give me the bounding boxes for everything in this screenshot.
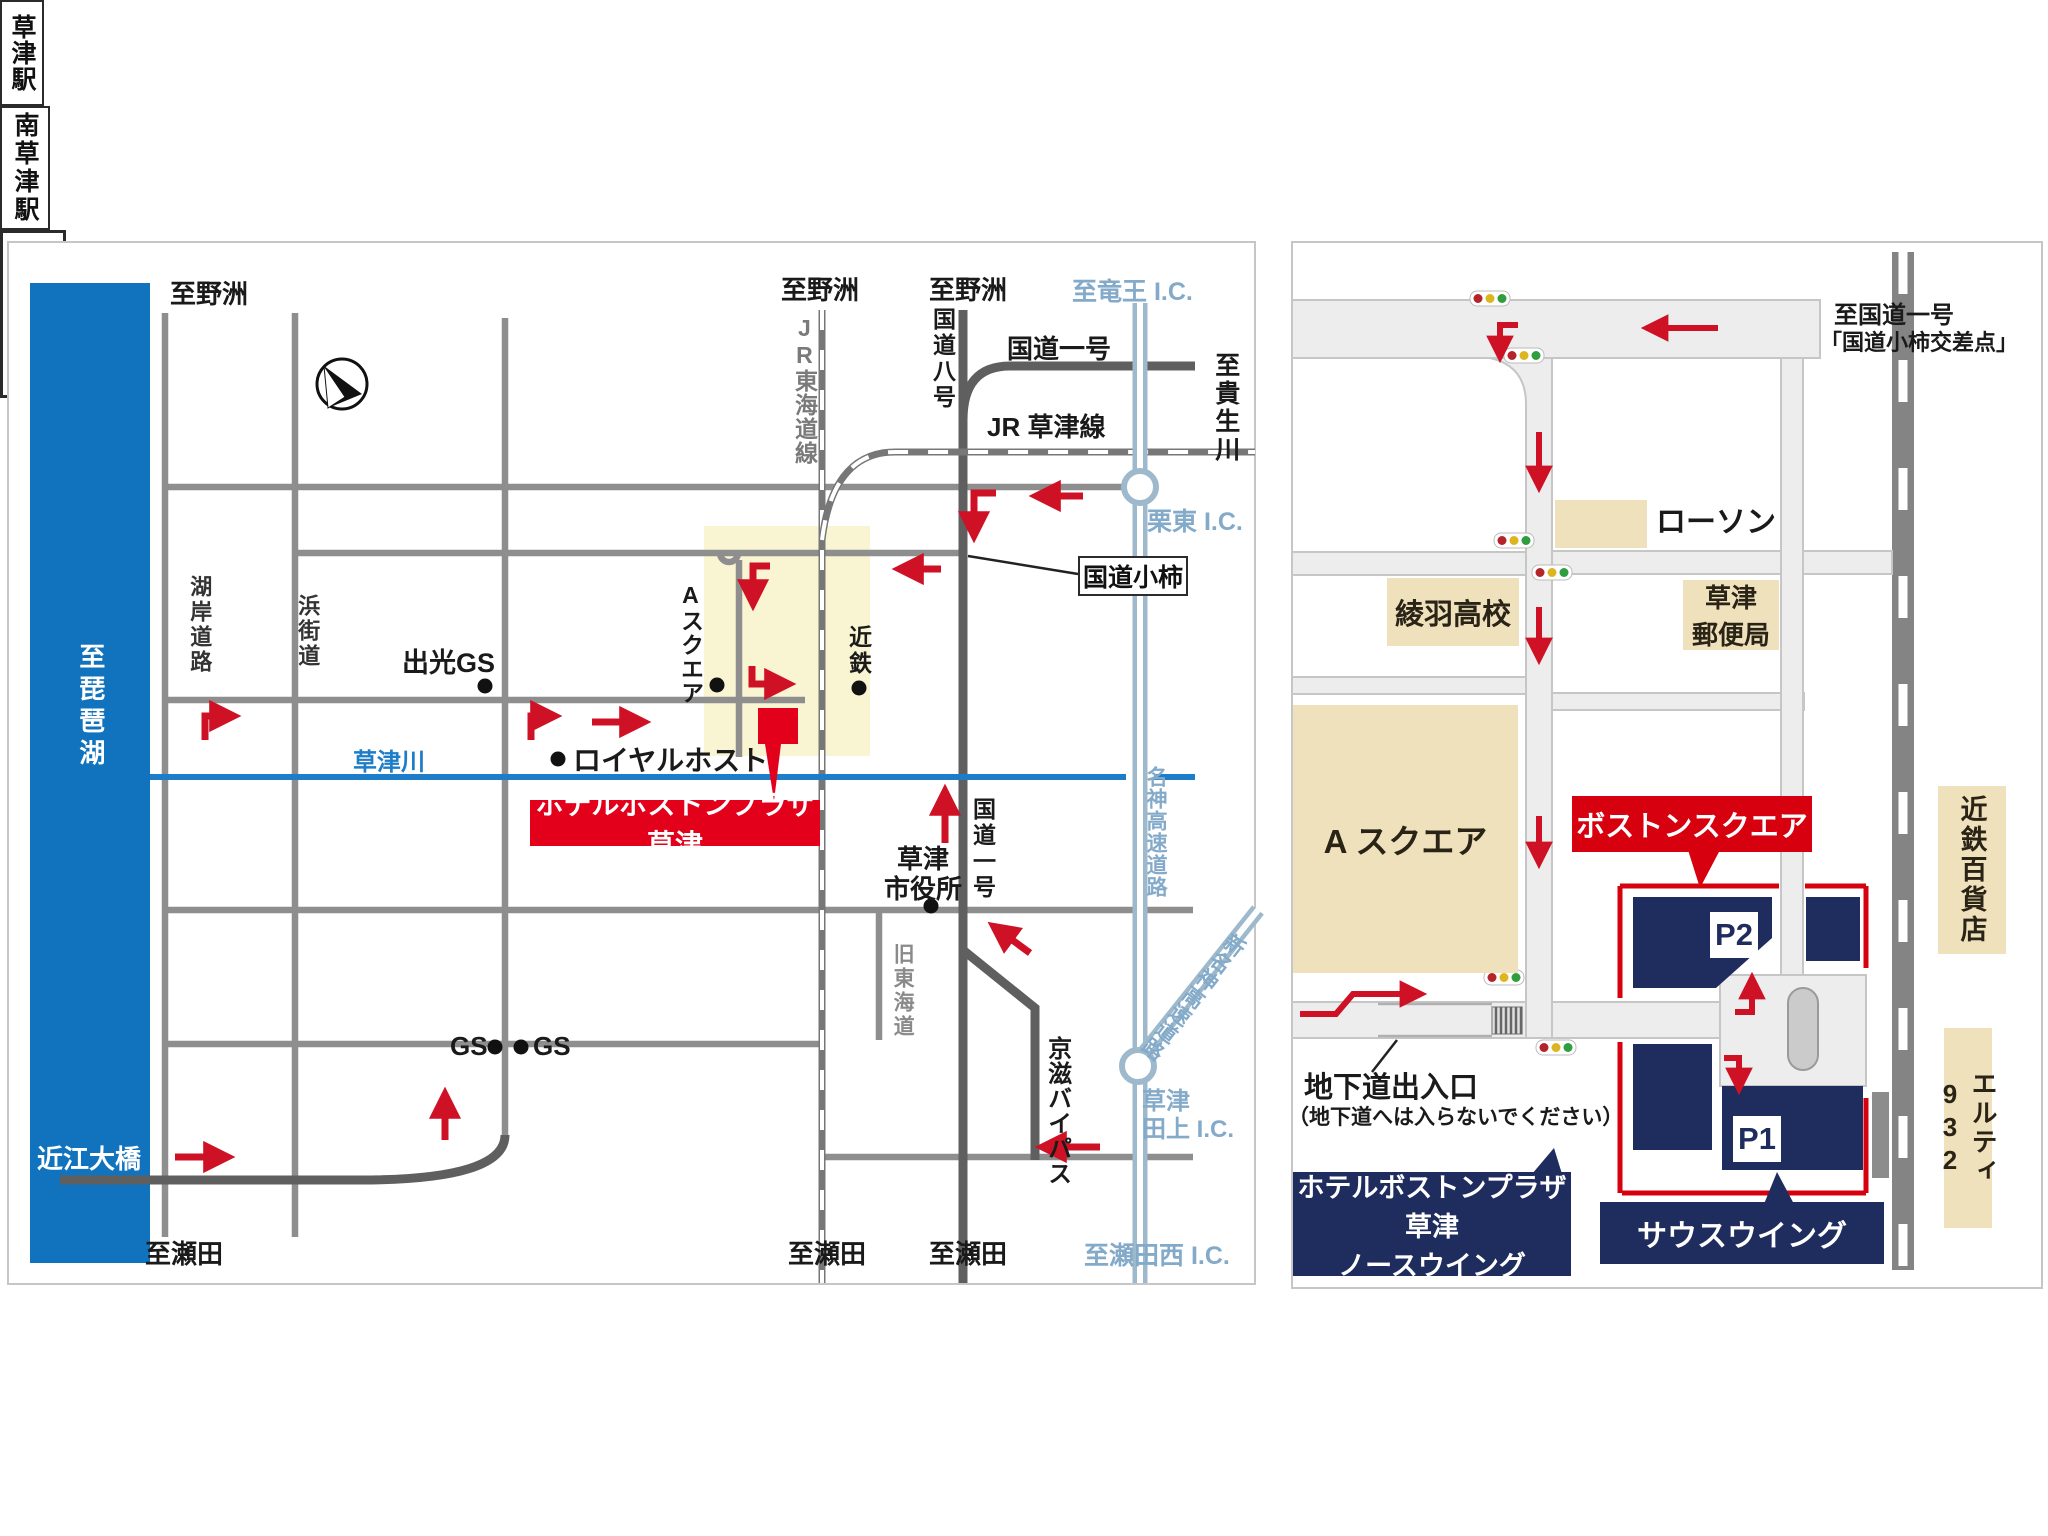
south-wing-box: サウスウイング (1600, 1202, 1884, 1264)
platform-bar (1872, 1092, 1889, 1178)
road-ha-east (1552, 551, 1892, 574)
kintetsu-dept-box: 近鉄百貨店 (1938, 786, 2006, 954)
omi-ohashi-label: 近江大橋 (37, 1145, 141, 1175)
to-setanishi-ic-label: 至瀬田西 I.C. (1084, 1242, 1230, 1271)
to-yasu-label-west: 至野洲 (170, 280, 248, 310)
hama-kaido-label: 浜街道 (295, 594, 320, 669)
rotary-island (1788, 988, 1818, 1070)
kogan-road-label: 湖岸道路 (187, 575, 212, 675)
east-building (1806, 897, 1860, 961)
to-yasu-label-rail: 至野洲 (781, 276, 859, 306)
royal-host-dot (551, 752, 566, 767)
hotel-north-line2: ノースウイング (1338, 1244, 1526, 1283)
to-route1-line1: 至国道一号 (1820, 302, 2018, 330)
road-hb-east (1552, 693, 1804, 710)
to-route1-label: 至国道一号 「国道小柿交差点」 (1820, 302, 2018, 355)
traffic-light-icon (1470, 291, 1510, 306)
city-hall-line1: 草津 (897, 845, 949, 875)
gs-west-label: GS (450, 1032, 488, 1062)
kintetsu-label: 近鉄 (845, 625, 871, 677)
to-seta-label-west: 至瀬田 (145, 1240, 223, 1270)
hotel-marker (758, 708, 798, 744)
underpass-label-line1: 地下道出入口 (1304, 1072, 1478, 1105)
hotel-north-line1: ホテルボストンプラザ草津 (1293, 1166, 1571, 1244)
right-railway (1892, 252, 1914, 1270)
to-biwako-label: 至琵琶湖 (75, 643, 105, 771)
a-square-box-right: A スクエア (1293, 705, 1518, 973)
north-wing-tower (1633, 1044, 1712, 1150)
a-square-dot (710, 678, 725, 693)
hotel-label-box: ホテルボストンプラザ草津 (530, 800, 820, 846)
to-seta-label-rail: 至瀬田 (788, 1240, 866, 1270)
traffic-light-icon (1532, 565, 1572, 580)
route8-label: 国道八号 (929, 307, 955, 411)
to-ryuo-ic-label: 至竜王 I.C. (1072, 278, 1193, 307)
compass-icon (317, 359, 367, 409)
p2-label-box: P2 (1710, 912, 1758, 958)
boston-square-label-box: ボストンスクエア (1572, 796, 1812, 852)
lawson-block (1555, 500, 1647, 548)
tagami-line1: 草津 (1142, 1088, 1190, 1116)
ritto-ic-circle (1124, 471, 1156, 503)
lake-biwa-bar (30, 283, 150, 1263)
city-hall-label: 草津 市役所 (884, 845, 962, 905)
idemitsu-gs-label: 出光GS (402, 648, 495, 679)
road-vb (1781, 358, 1803, 975)
kusatsu-tagami-ic-label: 草津 田上 I.C. (1142, 1088, 1234, 1143)
road-hc-east (1552, 1002, 1722, 1038)
map-graphics (0, 0, 2048, 1536)
gs-east-dot (514, 1040, 529, 1055)
to-kibugawa-label: 至貴生川 (1211, 352, 1240, 464)
tagami-line2: 田上 I.C. (1142, 1116, 1234, 1144)
kusatsu-river-label: 草津川 (353, 749, 425, 777)
to-route1-line2: 「国道小柿交差点」 (1820, 330, 2018, 355)
traffic-light-icon (1494, 533, 1534, 548)
kintetsu-dot (852, 681, 867, 696)
road-ha-west (1292, 552, 1526, 575)
post-office-box: 草津 郵便局 (1683, 580, 1779, 650)
route1-side-label: 国道一号 (969, 797, 995, 901)
jr-tokaido-label: JR東海道線 (791, 315, 817, 465)
access-map-page: 至野洲 至野洲 至野洲 至竜王 I.C. JR東海道線 国道八号 国道一号 JR… (0, 0, 2048, 1536)
post-office-line2: 郵便局 (1692, 615, 1770, 652)
a-square-label-left: Aスクエア (677, 582, 703, 705)
ayaha-high-school-box: 綾羽高校 (1387, 578, 1519, 646)
to-seta-label-route1: 至瀬田 (929, 1240, 1007, 1270)
jr-kusatsu-line-label: JR 草津線 (987, 413, 1105, 443)
hotel-north-wing-box: ホテルボストンプラザ草津 ノースウイング (1293, 1172, 1571, 1276)
old-tokaido-label: 旧東海道 (890, 943, 914, 1039)
city-hall-line2: 市役所 (884, 875, 962, 905)
to-yasu-label-route8: 至野洲 (929, 276, 1007, 306)
road-hb-west (1292, 677, 1526, 694)
traffic-light-icon (1504, 348, 1544, 363)
underpass-label-line2: （地下道へは入らないでください） (1288, 1106, 1623, 1130)
meishin-label: 名神高速道路 (1143, 766, 1167, 898)
road-top (1292, 300, 1820, 358)
keiji-bypass-label: 京滋バイパス (1043, 1036, 1071, 1186)
royal-host-label: ロイヤルホスト (573, 745, 768, 777)
lawson-label: ローソン (1656, 506, 1776, 541)
traffic-light-icon (1536, 1040, 1576, 1055)
p1-label-box: P1 (1733, 1116, 1781, 1162)
gs-east-label: GS (533, 1032, 571, 1062)
gs-west-dot (488, 1040, 503, 1055)
idemitsu-gs-dot (478, 679, 493, 694)
elty932-box: エルティ932 (1944, 1028, 1992, 1228)
post-office-line1: 草津 (1705, 578, 1757, 615)
road-hc-west (1292, 1002, 1526, 1038)
kokudo-kogaki-box: 国道小柿 (1078, 556, 1188, 596)
route1-top-label: 国道一号 (1007, 335, 1111, 365)
ritto-ic-label: 栗東 I.C. (1147, 508, 1243, 537)
